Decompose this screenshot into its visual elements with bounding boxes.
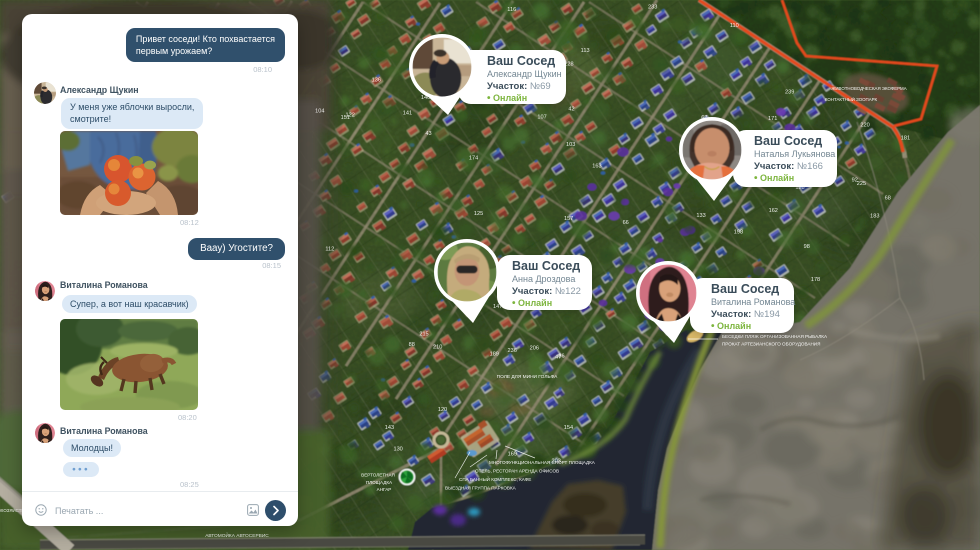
svg-text:ВЕРТОЛЕТНАЯ: ВЕРТОЛЕТНАЯ: [361, 473, 395, 478]
svg-text:171: 171: [768, 116, 777, 122]
svg-text:162: 162: [769, 208, 778, 214]
svg-text:СПА БАННЫЙ КОМПЛЕКС, КАФЕ: СПА БАННЫЙ КОМПЛЕКС, КАФЕ: [459, 475, 531, 482]
svg-text:116: 116: [507, 7, 516, 13]
svg-text:136: 136: [372, 78, 381, 84]
svg-text:98: 98: [804, 244, 810, 250]
svg-text:88: 88: [409, 342, 415, 348]
svg-text:112: 112: [325, 247, 334, 253]
svg-text:ПРОКАТ АРТЕЗИАНСКОГО ОБОРУДОВА: ПРОКАТ АРТЕЗИАНСКОГО ОБОРУДОВАНИЯ: [722, 342, 820, 347]
svg-text:ПЛОЩАДКА: ПЛОЩАДКА: [366, 480, 393, 485]
svg-text:120: 120: [438, 407, 447, 413]
svg-text:АНГАР: АНГАР: [377, 487, 392, 492]
svg-text:183: 183: [870, 214, 879, 220]
svg-text:157: 157: [564, 216, 573, 222]
svg-text:225: 225: [857, 181, 866, 187]
svg-text:206: 206: [530, 346, 539, 352]
svg-text:203: 203: [552, 458, 561, 464]
svg-text:БЕСЕДКИ ПЛЯЖ ОРГАНИЗОВАННАЯ РЫ: БЕСЕДКИ ПЛЯЖ ОРГАНИЗОВАННАЯ РЫБАЛКА: [722, 334, 828, 339]
svg-text:233: 233: [648, 5, 657, 11]
svg-text:151: 151: [341, 115, 350, 121]
svg-text:86: 86: [558, 353, 564, 359]
svg-text:107: 107: [537, 115, 546, 121]
svg-text:42: 42: [568, 106, 574, 112]
svg-text:66: 66: [623, 220, 629, 226]
svg-text:125: 125: [474, 211, 483, 217]
svg-text:174: 174: [469, 156, 478, 162]
svg-text:236: 236: [508, 348, 517, 354]
svg-text:198: 198: [734, 229, 743, 235]
svg-text:43: 43: [425, 131, 431, 137]
svg-text:220: 220: [860, 122, 869, 128]
svg-text:181: 181: [901, 135, 910, 141]
svg-text:154: 154: [564, 425, 573, 431]
svg-text:133: 133: [696, 213, 705, 219]
svg-text:169: 169: [508, 452, 517, 458]
svg-text:МНОГОФУНКЦИОНАЛЬНАЯ СПОРТ ПЛОЩ: МНОГОФУНКЦИОНАЛЬНАЯ СПОРТ ПЛОЩАДКА: [489, 460, 596, 465]
svg-text:104: 104: [315, 108, 324, 114]
svg-text:110: 110: [730, 23, 739, 29]
svg-text:103: 103: [566, 142, 575, 148]
svg-text:178: 178: [811, 277, 820, 283]
svg-text:КОНТАКТНЫЙ ЗООПАРК: КОНТАКТНЫЙ ЗООПАРК: [825, 97, 878, 102]
svg-text:215: 215: [419, 332, 428, 338]
svg-text:210: 210: [433, 344, 442, 350]
svg-text:239: 239: [785, 90, 794, 96]
svg-text:68: 68: [885, 195, 891, 201]
svg-text:113: 113: [581, 48, 590, 54]
svg-text:143: 143: [385, 425, 394, 431]
svg-text:130: 130: [393, 446, 402, 452]
svg-text:163: 163: [592, 163, 601, 169]
svg-text:ЖИВОТНОВОДЧЕСКАЯ ЭКОФЕРМА: ЖИВОТНОВОДЧЕСКАЯ ЭКОФЕРМА: [831, 86, 906, 91]
svg-text:ВЫЕЗДНАЯ ГРУППА ПАРКОВКА: ВЫЕЗДНАЯ ГРУППА ПАРКОВКА: [445, 486, 517, 491]
svg-text:189: 189: [490, 351, 499, 357]
svg-text:ОТЕЛЬ, РЕСТОРАН АРЕНДА ОФИСОВ: ОТЕЛЬ, РЕСТОРАН АРЕНДА ОФИСОВ: [475, 469, 559, 474]
svg-text:ПОЛЕ ДЛЯ МИНИ ГОЛЬФА: ПОЛЕ ДЛЯ МИНИ ГОЛЬФА: [497, 374, 559, 380]
